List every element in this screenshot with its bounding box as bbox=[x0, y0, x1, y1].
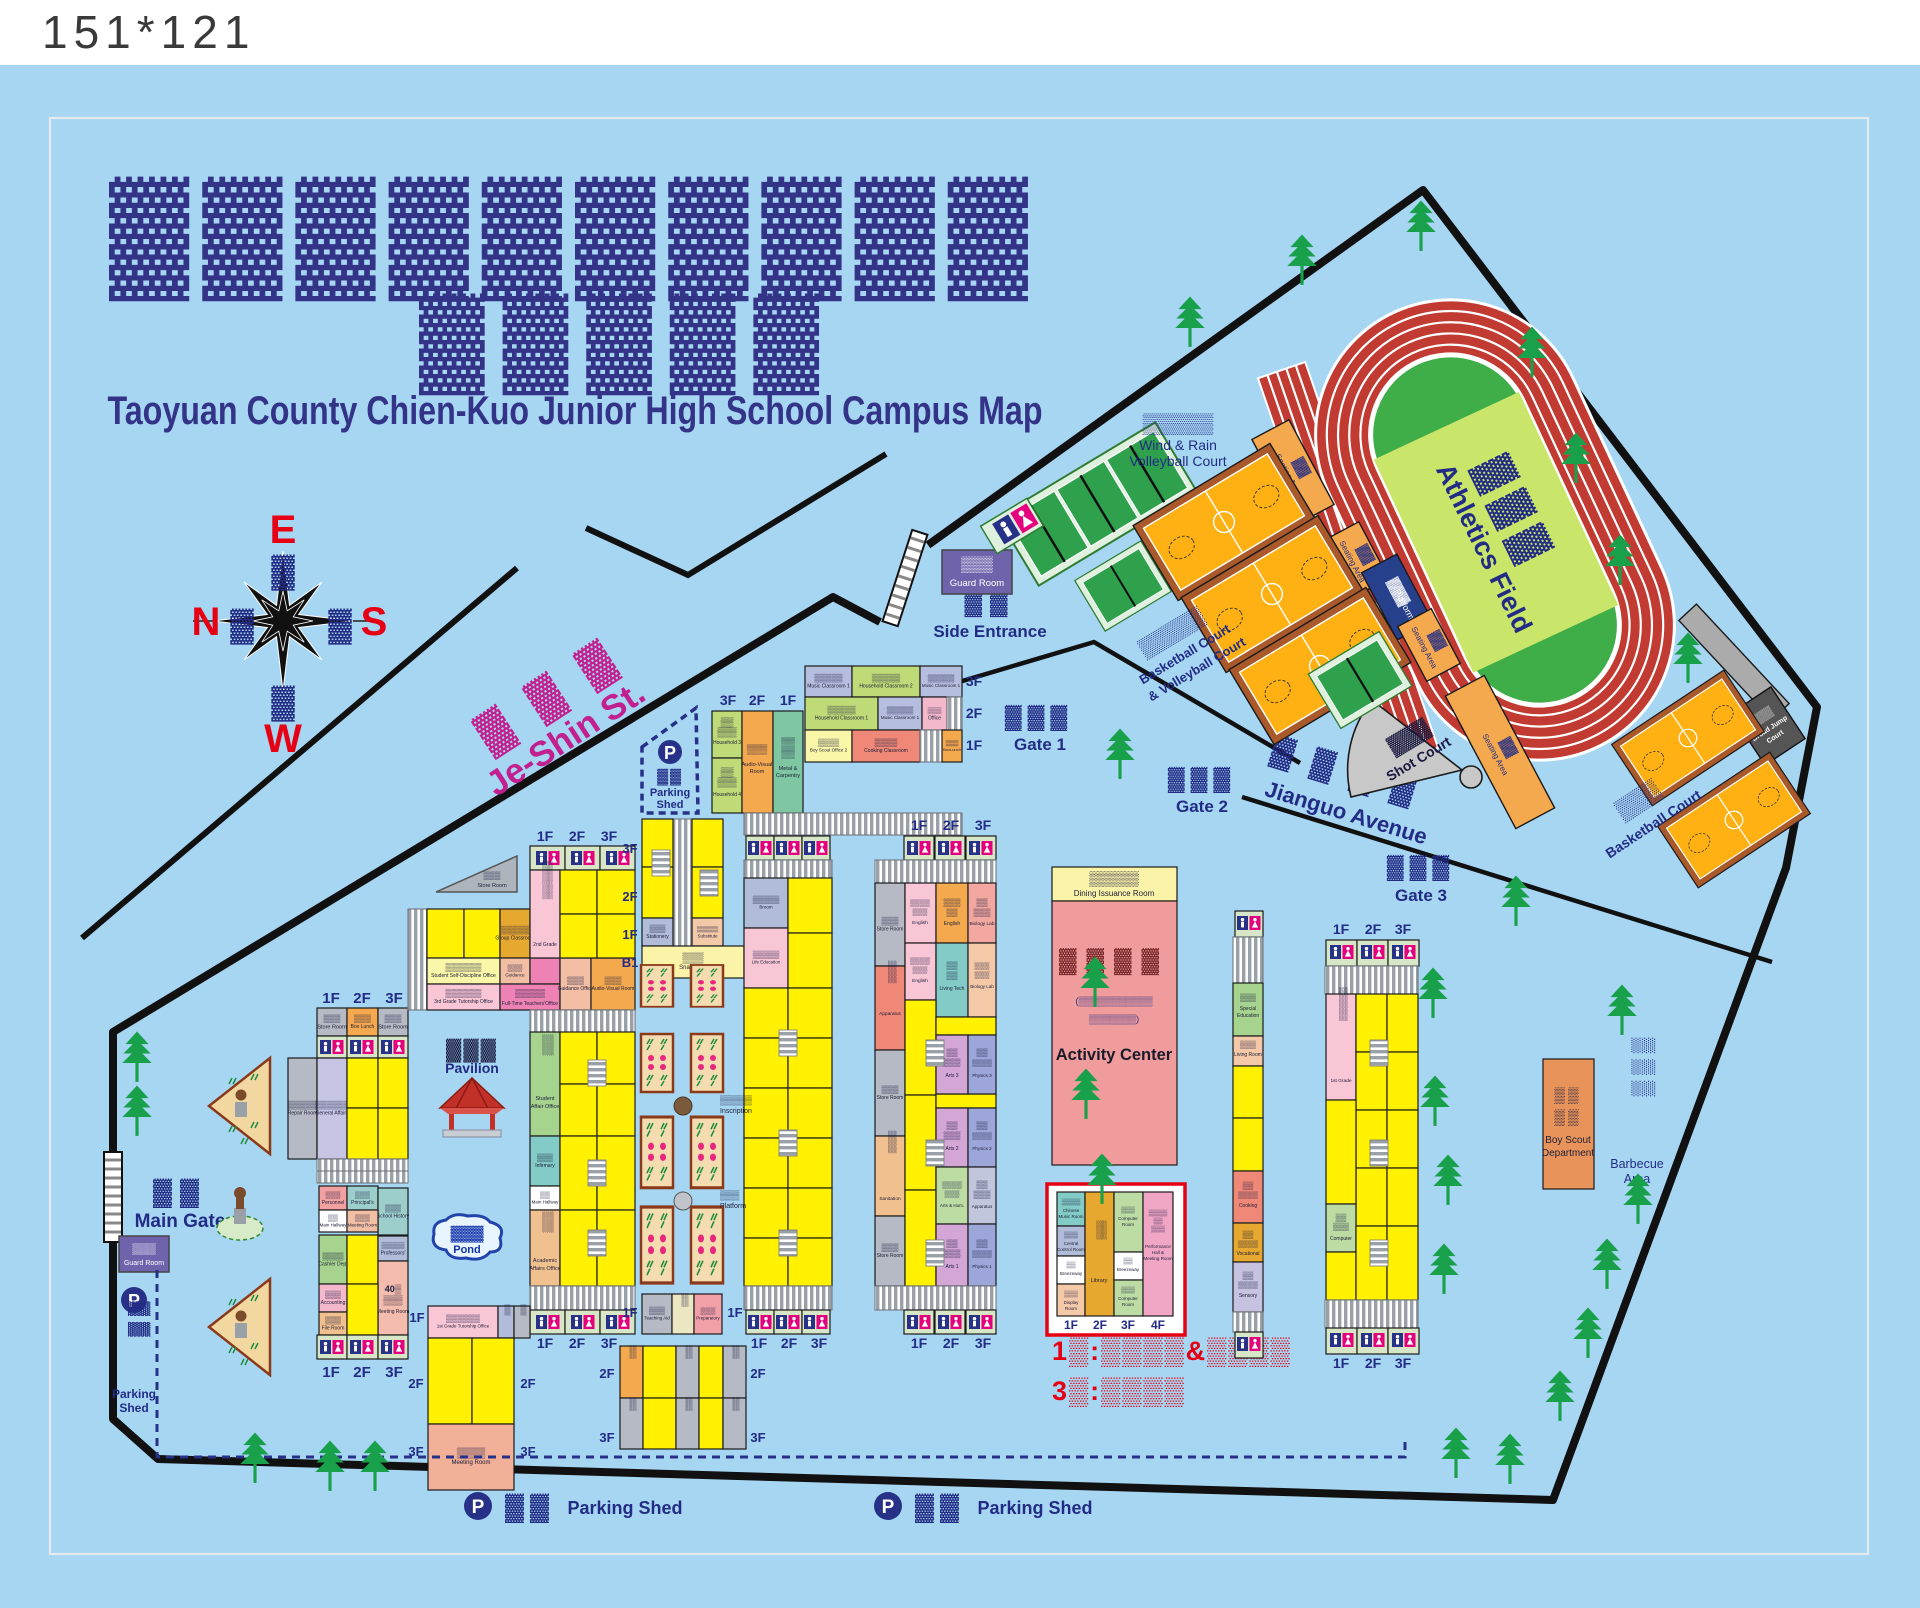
svg-text:▒▒: ▒▒ bbox=[946, 1121, 958, 1130]
svg-text:▒▒▒▒▒: ▒▒▒▒▒ bbox=[928, 674, 955, 683]
svg-text:Pavilion: Pavilion bbox=[445, 1060, 499, 1076]
svg-text:3F: 3F bbox=[1395, 921, 1412, 937]
svg-text:▒▒▒: ▒▒▒ bbox=[881, 1243, 898, 1252]
svg-text:▒▒▒▒▒: ▒▒▒▒▒ bbox=[515, 988, 545, 998]
svg-text:Special: Special bbox=[1240, 1006, 1256, 1012]
svg-text:4F: 4F bbox=[1151, 1318, 1165, 1332]
svg-text:▒▒▒▒▒: ▒▒▒▒▒ bbox=[720, 1095, 753, 1106]
svg-text:Living Tech: Living Tech bbox=[940, 986, 965, 992]
svg-text:▒▒▒: ▒▒▒ bbox=[520, 1304, 527, 1316]
svg-text:3F: 3F bbox=[750, 1430, 765, 1445]
svg-text:▒▒▒▒: ▒▒▒▒ bbox=[322, 1252, 344, 1261]
svg-text:Cashier Dept: Cashier Dept bbox=[318, 1262, 348, 1268]
svg-text:2F: 2F bbox=[1093, 1318, 1107, 1332]
svg-text:▓: ▓ bbox=[328, 606, 352, 645]
svg-text:Library: Library bbox=[1091, 1278, 1108, 1284]
svg-text:▒▒: ▒▒ bbox=[1243, 1230, 1254, 1239]
svg-text:▒▒▒: ▒▒▒ bbox=[732, 1397, 740, 1411]
svg-text:Student Self-Discipline Office: Student Self-Discipline Office bbox=[431, 973, 496, 979]
svg-text:▒▒▒: ▒▒▒ bbox=[567, 976, 584, 985]
svg-text:▒▒▒: ▒▒▒ bbox=[1151, 1225, 1165, 1233]
svg-text:Meeting Room: Meeting Room bbox=[348, 1223, 378, 1228]
svg-text:3F: 3F bbox=[975, 817, 992, 833]
svg-text:Computer: Computer bbox=[1118, 1216, 1138, 1221]
svg-text:Room: Room bbox=[1065, 1306, 1077, 1311]
svg-text:Metal &: Metal & bbox=[779, 766, 798, 772]
svg-text:▒▒▒: ▒▒▒ bbox=[928, 707, 942, 715]
svg-text:Volleyball Court: Volleyball Court bbox=[1129, 453, 1226, 469]
svg-text:2F: 2F bbox=[622, 889, 637, 904]
svg-text:Cooking: Cooking bbox=[1239, 1203, 1258, 1209]
svg-text:▒▒▒: ▒▒▒ bbox=[943, 1058, 960, 1067]
svg-text:▒▒: ▒▒ bbox=[1243, 1271, 1254, 1280]
svg-text:▒▒: ▒▒ bbox=[946, 1048, 958, 1057]
svg-text:3F: 3F bbox=[966, 673, 983, 689]
svg-text:▒▒▒: ▒▒▒ bbox=[325, 1290, 342, 1299]
svg-text:B1: B1 bbox=[622, 955, 639, 970]
svg-text:Room: Room bbox=[750, 769, 765, 775]
svg-text:2F: 2F bbox=[1365, 921, 1382, 937]
svg-text:▒▒▒: ▒▒▒ bbox=[650, 924, 667, 933]
svg-text:▒▒▒: ▒▒▒ bbox=[385, 1204, 402, 1213]
svg-text:▒▒▒▒▒▒: ▒▒▒▒▒▒ bbox=[445, 988, 481, 998]
svg-text:▒▒: ▒▒ bbox=[976, 1239, 988, 1248]
svg-text:▓▓▓▓▓: ▓▓▓▓▓ bbox=[419, 288, 837, 396]
svg-text:Boy Scout: Boy Scout bbox=[1545, 1135, 1591, 1146]
svg-text:Store Room: Store Room bbox=[877, 1095, 904, 1101]
svg-text:Professors': Professors' bbox=[381, 1251, 406, 1257]
svg-text:Arts 1: Arts 1 bbox=[945, 1264, 958, 1270]
svg-text:▒▒▒: ▒▒▒ bbox=[943, 1131, 960, 1140]
svg-text:▓▓: ▓▓ bbox=[505, 1491, 555, 1523]
svg-text:P: P bbox=[472, 1497, 485, 1518]
svg-text:▒▒▒: ▒▒▒ bbox=[717, 777, 737, 788]
svg-text:Group Classroom: Group Classroom bbox=[495, 936, 534, 942]
svg-text:▒▒▒▒▒: ▒▒▒▒▒ bbox=[1089, 870, 1139, 887]
svg-text:2F: 2F bbox=[781, 1335, 798, 1351]
svg-text:2F: 2F bbox=[943, 817, 960, 833]
svg-text:▓▓: ▓▓ bbox=[128, 1301, 151, 1342]
svg-text:Sanitation: Sanitation bbox=[879, 1196, 901, 1202]
svg-text:▒▒: ▒▒ bbox=[1066, 1261, 1076, 1269]
svg-text:Principal's: Principal's bbox=[351, 1200, 374, 1206]
svg-text:Parking Shed: Parking Shed bbox=[567, 1498, 682, 1518]
svg-text:General Affairs: General Affairs bbox=[316, 1111, 349, 1117]
svg-text:Arts 3: Arts 3 bbox=[945, 1073, 958, 1079]
svg-text:Physics 1: Physics 1 bbox=[972, 1264, 992, 1269]
svg-text:▒▒▒▒▒: ▒▒▒▒▒ bbox=[381, 1242, 404, 1250]
svg-text:E: E bbox=[270, 508, 297, 552]
svg-text:1F: 1F bbox=[780, 692, 797, 708]
svg-text:▒▒▒: ▒▒▒ bbox=[1333, 1222, 1350, 1231]
svg-text:▒▒: ▒▒ bbox=[946, 971, 958, 980]
svg-text:Household Classroom 1: Household Classroom 1 bbox=[815, 716, 869, 722]
svg-text:▒▒▒▒: ▒▒▒▒ bbox=[1062, 1198, 1081, 1206]
svg-text:2F: 2F bbox=[599, 1366, 614, 1381]
svg-text:▒▒▒: ▒▒▒ bbox=[975, 971, 990, 979]
svg-text:▒▒▒: ▒▒▒ bbox=[973, 1190, 990, 1199]
svg-text:Preparatory: Preparatory bbox=[696, 1316, 720, 1321]
svg-text:English: English bbox=[912, 920, 928, 926]
svg-text:▓: ▓ bbox=[230, 606, 254, 645]
svg-text:▒▒▒▒: ▒▒▒▒ bbox=[972, 1059, 992, 1067]
svg-text:▓▓▓▓: ▓▓▓▓ bbox=[1059, 947, 1169, 976]
svg-text:Infirmary: Infirmary bbox=[535, 1163, 555, 1169]
svg-text:School History: School History bbox=[377, 1214, 410, 1220]
svg-text:Department: Department bbox=[1542, 1148, 1594, 1159]
svg-text:P: P bbox=[664, 743, 676, 763]
svg-text:▒▒▒: ▒▒▒ bbox=[629, 1345, 637, 1359]
svg-text:2F: 2F bbox=[569, 1335, 586, 1351]
svg-text:▒▒▒: ▒▒▒ bbox=[537, 1153, 554, 1162]
svg-text:1st Grade: 1st Grade bbox=[1330, 1078, 1351, 1084]
svg-text:▒▒▒: ▒▒▒ bbox=[1631, 1038, 1657, 1103]
svg-text:▒▒▒▒▒: ▒▒▒▒▒ bbox=[814, 674, 843, 683]
svg-text:1F: 1F bbox=[911, 1335, 928, 1351]
svg-text:Meeting Room: Meeting Room bbox=[1143, 1256, 1173, 1261]
svg-text:Biology Lab: Biology Lab bbox=[970, 984, 994, 989]
svg-text:3F: 3F bbox=[601, 1335, 618, 1351]
svg-text:▓▓▓: ▓▓▓ bbox=[1005, 703, 1073, 731]
svg-text:▒▒▒: ▒▒▒ bbox=[701, 1307, 716, 1315]
svg-text:▒▒▒: ▒▒▒ bbox=[943, 898, 960, 907]
svg-text:▒▒▒: ▒▒▒ bbox=[604, 976, 621, 985]
svg-text:▒▒▒▒▒▒: ▒▒▒▒▒▒ bbox=[445, 962, 481, 972]
svg-text:▒▒: ▒▒ bbox=[540, 1191, 550, 1199]
svg-text:Guard Room: Guard Room bbox=[124, 1260, 164, 1267]
svg-text:Affairs Office: Affairs Office bbox=[529, 1266, 560, 1272]
svg-text:Dining Issuance Room: Dining Issuance Room bbox=[1074, 889, 1155, 898]
svg-text:▒▒▒▒▒▒▒): ▒▒▒▒▒▒▒) bbox=[1089, 1014, 1139, 1025]
svg-text:Student: Student bbox=[536, 1096, 555, 1102]
svg-text:▓▓: ▓▓ bbox=[657, 768, 683, 786]
svg-text:Platform: Platform bbox=[720, 1203, 746, 1210]
svg-text:▒▒▒▒▒: ▒▒▒▒▒ bbox=[1143, 413, 1215, 435]
svg-text:▒▒▒▒: ▒▒▒▒ bbox=[942, 1181, 962, 1189]
svg-text:▒▒▒: ▒▒▒ bbox=[542, 1034, 554, 1056]
svg-text:Full-Time Teachers'Office: Full-Time Teachers'Office bbox=[502, 1001, 558, 1007]
svg-text:▒▒▒▒: ▒▒▒▒ bbox=[888, 961, 897, 984]
svg-text:Shed: Shed bbox=[657, 799, 684, 811]
svg-text:Control Room: Control Room bbox=[1057, 1247, 1085, 1252]
svg-text:Parking: Parking bbox=[112, 1387, 156, 1401]
svg-text:▒▒▒: ▒▒▒ bbox=[881, 917, 898, 926]
svg-text:▒▒▒: ▒▒▒ bbox=[961, 556, 993, 573]
svg-text:Guidance Office: Guidance Office bbox=[558, 986, 594, 992]
svg-text:▒▒▒▒: ▒▒▒▒ bbox=[910, 899, 930, 907]
svg-text:Sensory: Sensory bbox=[1239, 1293, 1258, 1299]
svg-text:▒▒▒▒▒: ▒▒▒▒▒ bbox=[288, 1101, 317, 1110]
svg-text:▓▓: ▓▓ bbox=[153, 1176, 207, 1208]
svg-text:▒▒: ▒▒ bbox=[1123, 1257, 1133, 1265]
svg-text:▒▒▒: ▒▒▒ bbox=[1121, 1286, 1135, 1294]
svg-text:Main Hallway: Main Hallway bbox=[320, 1223, 348, 1228]
svg-text:Apparatus: Apparatus bbox=[879, 1011, 901, 1017]
svg-text:▒▒▒: ▒▒▒ bbox=[881, 1085, 898, 1094]
svg-text:Education: Education bbox=[1237, 1013, 1259, 1019]
svg-text:▒▒▒: ▒▒▒ bbox=[946, 740, 960, 747]
svg-text:▓▓▓▓▓▓▓▓▓▓: ▓▓▓▓▓▓▓▓▓▓ bbox=[109, 169, 1041, 302]
svg-text:▒▒: ▒▒ bbox=[946, 961, 958, 970]
svg-text:▒▒▒: ▒▒▒ bbox=[355, 1214, 370, 1222]
svg-text:1F: 1F bbox=[322, 990, 340, 1007]
svg-text:▒▒▒▒: ▒▒▒▒ bbox=[1238, 1281, 1258, 1289]
svg-text:Activity Center: Activity Center bbox=[1056, 1046, 1173, 1064]
svg-text:▒▒▒: ▒▒▒ bbox=[732, 1345, 740, 1359]
svg-text:▒▒▒: ▒▒▒ bbox=[747, 744, 767, 755]
svg-text:1F: 1F bbox=[537, 828, 554, 844]
svg-text:2F: 2F bbox=[569, 828, 586, 844]
svg-text:▒▒▒▒: ▒▒▒▒ bbox=[1238, 1240, 1258, 1248]
svg-text:▒▒▒: ▒▒▒ bbox=[483, 871, 500, 880]
svg-text:Main Gate: Main Gate bbox=[135, 1211, 226, 1232]
svg-text:▒▒: ▒▒ bbox=[946, 908, 958, 917]
svg-text:Meeting Room: Meeting Room bbox=[377, 1309, 410, 1315]
svg-text:Physics 2: Physics 2 bbox=[972, 1146, 992, 1151]
svg-text:Vocational: Vocational bbox=[1236, 1251, 1259, 1257]
svg-text:Household 3: Household 3 bbox=[713, 740, 741, 746]
svg-text:Music Room: Music Room bbox=[1058, 1214, 1083, 1219]
svg-text:2F: 2F bbox=[750, 1366, 765, 1381]
svg-text:Arts & Hum.: Arts & Hum. bbox=[940, 1203, 964, 1208]
svg-text:▒▒▒: ▒▒▒ bbox=[913, 966, 928, 974]
svg-text:▒▒: ▒▒ bbox=[1554, 1087, 1581, 1104]
svg-text:Side Entrance: Side Entrance bbox=[933, 622, 1046, 641]
svg-text:▒▒▒: ▒▒▒ bbox=[354, 1014, 371, 1023]
svg-text:1F: 1F bbox=[1064, 1318, 1078, 1332]
svg-text:1st Grade Tutorship Office: 1st Grade Tutorship Office bbox=[437, 1324, 490, 1329]
svg-text:Store Room: Store Room bbox=[877, 927, 904, 933]
svg-text:▒▒▒: ▒▒▒ bbox=[913, 908, 928, 916]
svg-text:▒▒▒: ▒▒▒ bbox=[685, 1397, 693, 1411]
svg-text:Household 4: Household 4 bbox=[713, 792, 741, 798]
svg-text:Parking Shed: Parking Shed bbox=[977, 1498, 1092, 1518]
svg-text:Substitute: Substitute bbox=[697, 934, 718, 939]
svg-text:▓▓▓: ▓▓▓ bbox=[1168, 765, 1236, 793]
svg-text:▒▒▒: ▒▒▒ bbox=[681, 1293, 689, 1307]
svg-text:Academic: Academic bbox=[533, 1258, 557, 1264]
svg-text:Physics 3: Physics 3 bbox=[972, 1073, 992, 1078]
svg-text:Apparatus: Apparatus bbox=[972, 1204, 993, 1209]
svg-text:▒▒▒▒: ▒▒▒▒ bbox=[888, 1131, 897, 1154]
svg-text:P: P bbox=[882, 1497, 895, 1518]
svg-text:Hall &: Hall & bbox=[1152, 1250, 1164, 1255]
svg-text:Audio-Visual Room: Audio-Visual Room bbox=[592, 986, 635, 992]
svg-text:Computer: Computer bbox=[1330, 1236, 1352, 1242]
svg-text:Meeting Room: Meeting Room bbox=[451, 1460, 490, 1466]
svg-text:Living Room: Living Room bbox=[1234, 1052, 1262, 1058]
svg-text:▒▒: ▒▒ bbox=[1336, 1213, 1347, 1222]
svg-text:1F: 1F bbox=[409, 1310, 424, 1325]
svg-text:▒▒▒: ▒▒▒ bbox=[326, 1191, 341, 1199]
svg-text:▓▓: ▓▓ bbox=[915, 1491, 965, 1523]
svg-text:▒▒▒: ▒▒▒ bbox=[649, 1306, 666, 1315]
svg-text:1F: 1F bbox=[751, 1335, 768, 1351]
svg-text:Room: Room bbox=[1122, 1222, 1134, 1227]
svg-text:▒▒▒▒: ▒▒▒▒ bbox=[818, 738, 840, 747]
svg-text:▒▒▒: ▒▒▒ bbox=[325, 1316, 342, 1325]
svg-text:2F: 2F bbox=[749, 692, 766, 708]
svg-text:▒▒▒: ▒▒▒ bbox=[685, 1345, 693, 1359]
svg-text:Affair Office: Affair Office bbox=[531, 1104, 560, 1110]
svg-text:2F: 2F bbox=[408, 1376, 423, 1391]
svg-text:N: N bbox=[192, 600, 221, 644]
svg-text:Store Room: Store Room bbox=[317, 1025, 347, 1031]
svg-text:Teaching Aid: Teaching Aid bbox=[644, 1316, 670, 1321]
svg-text:151*121: 151*121 bbox=[42, 6, 255, 58]
svg-text:▒▒: ▒▒ bbox=[328, 1214, 338, 1222]
svg-text:Repair Room: Repair Room bbox=[288, 1111, 317, 1117]
svg-text:▒▒▒▒: ▒▒▒▒ bbox=[875, 738, 898, 747]
svg-text:▒▒: ▒▒ bbox=[976, 898, 988, 907]
svg-text:3rd Grade Tutorship Office: 3rd Grade Tutorship Office bbox=[434, 999, 493, 1005]
svg-text:S: S bbox=[361, 600, 388, 644]
svg-text:2F: 2F bbox=[520, 1376, 535, 1391]
svg-text:Office: Office bbox=[928, 716, 941, 722]
svg-text:1F: 1F bbox=[966, 737, 983, 753]
svg-text:▒▒▒▒: ▒▒▒▒ bbox=[1238, 1191, 1258, 1199]
svg-text:File Room: File Room bbox=[322, 1326, 345, 1332]
svg-text:3F: 3F bbox=[811, 1335, 828, 1351]
svg-text:▓▓▓: ▓▓▓ bbox=[1387, 853, 1455, 881]
svg-text:▒▒: ▒▒ bbox=[976, 1180, 988, 1189]
svg-text:▒▒▒: ▒▒▒ bbox=[720, 1190, 740, 1201]
svg-text:Central: Central bbox=[1064, 1241, 1079, 1246]
svg-text:2F: 2F bbox=[1365, 1355, 1382, 1371]
svg-text:Computer: Computer bbox=[1118, 1296, 1138, 1301]
svg-text:3F: 3F bbox=[975, 1335, 992, 1351]
svg-text:▒▒: ▒▒ bbox=[946, 1239, 958, 1248]
svg-text:▒▒▒: ▒▒▒ bbox=[355, 1191, 370, 1199]
svg-text:Parking: Parking bbox=[650, 787, 690, 799]
svg-text:▒▒▒: ▒▒▒ bbox=[383, 1295, 403, 1306]
svg-text:▒▒▒: ▒▒▒ bbox=[682, 952, 704, 964]
svg-text:▒▒▒: ▒▒▒ bbox=[973, 908, 990, 917]
svg-text:Taoyuan County Chien-Kuo Junio: Taoyuan County Chien-Kuo Junior High Sch… bbox=[108, 389, 1043, 433]
svg-text:1F: 1F bbox=[322, 1364, 340, 1381]
svg-text:▒▒▒: ▒▒▒ bbox=[1240, 1040, 1257, 1049]
svg-text:2F: 2F bbox=[966, 705, 983, 721]
svg-text:▒▒▒▒: ▒▒▒▒ bbox=[972, 1250, 992, 1258]
svg-text:Music Classroom 1: Music Classroom 1 bbox=[881, 715, 920, 720]
svg-text:3F: 3F bbox=[720, 692, 737, 708]
svg-text:40▒: 40▒ bbox=[385, 1284, 402, 1295]
svg-text:Chinese: Chinese bbox=[1063, 1208, 1080, 1213]
svg-text:▒▒▒▒: ▒▒▒▒ bbox=[1149, 1209, 1168, 1217]
svg-text:▒▒▒: ▒▒▒ bbox=[1064, 1290, 1078, 1298]
svg-text:▒▒▒: ▒▒▒ bbox=[717, 727, 737, 738]
svg-text:1F: 1F bbox=[622, 927, 637, 942]
svg-text:Broom: Broom bbox=[759, 905, 773, 910]
svg-text:3F: 3F bbox=[622, 841, 637, 856]
svg-text:Boy Scout Office 2: Boy Scout Office 2 bbox=[810, 748, 848, 753]
svg-text:▒▒▒: ▒▒▒ bbox=[323, 1014, 340, 1023]
svg-text:▒▒▒▒▒▒: ▒▒▒▒▒▒ bbox=[1339, 987, 1348, 1021]
svg-text:▒▒▒: ▒▒▒ bbox=[1096, 1220, 1107, 1240]
svg-text:▒▒▒: ▒▒▒ bbox=[629, 1397, 637, 1411]
svg-text:▒▒▒▒▒▒: ▒▒▒▒▒▒ bbox=[542, 861, 553, 900]
svg-text:3F: 3F bbox=[599, 1430, 614, 1445]
svg-text:BoxLunch: BoxLunch bbox=[943, 747, 961, 752]
svg-text:1F: 1F bbox=[911, 817, 928, 833]
svg-text:Gate 2: Gate 2 bbox=[1176, 797, 1228, 816]
svg-text:Accounting: Accounting bbox=[321, 1300, 346, 1306]
svg-text:Breezeway: Breezeway bbox=[1117, 1267, 1140, 1272]
svg-text:Shed: Shed bbox=[119, 1401, 148, 1415]
svg-text:Pond: Pond bbox=[453, 1244, 481, 1256]
svg-text:▒▒▒: ▒▒▒ bbox=[384, 1014, 401, 1023]
svg-text:▒▒▒: ▒▒▒ bbox=[504, 1304, 511, 1316]
svg-text:▒▒▒▒▒: ▒▒▒▒▒ bbox=[697, 926, 719, 933]
svg-text:▒▒: ▒▒ bbox=[976, 1048, 988, 1057]
svg-text:1F: 1F bbox=[537, 1335, 554, 1351]
svg-text:Carpentry: Carpentry bbox=[776, 773, 800, 779]
svg-text:English: English bbox=[944, 921, 961, 927]
svg-text:Life Education: Life Education bbox=[752, 960, 781, 965]
svg-text:Music Classroom 1: Music Classroom 1 bbox=[807, 684, 850, 690]
svg-text:Audio-Visual: Audio-Visual bbox=[742, 762, 773, 768]
svg-text:Store Room: Store Room bbox=[477, 883, 507, 889]
svg-text:Stationery: Stationery bbox=[646, 934, 669, 940]
svg-text:2nd Grade: 2nd Grade bbox=[533, 942, 557, 948]
svg-text:(▒▒▒▒▒▒▒▒▒▒▒: (▒▒▒▒▒▒▒▒▒▒▒ bbox=[1075, 996, 1152, 1007]
svg-text:1F: 1F bbox=[1333, 1355, 1350, 1371]
svg-text:3F: 3F bbox=[1121, 1318, 1135, 1332]
svg-text:Box Lunch: Box Lunch bbox=[351, 1024, 375, 1030]
svg-text:▒▒▒▒▒▒: ▒▒▒▒▒▒ bbox=[446, 1314, 480, 1323]
svg-text:Room: Room bbox=[1122, 1302, 1134, 1307]
svg-text:Main Hallway: Main Hallway bbox=[532, 1200, 560, 1205]
svg-text:▓: ▓ bbox=[271, 552, 295, 591]
svg-text:▒▒▒: ▒▒▒ bbox=[542, 1211, 554, 1233]
svg-text:1F: 1F bbox=[727, 1305, 742, 1320]
svg-text:2F: 2F bbox=[353, 1364, 371, 1381]
svg-text:▒▒▒▒▒: ▒▒▒▒▒ bbox=[887, 706, 914, 715]
svg-text:▒▒▒▒▒: ▒▒▒▒▒ bbox=[501, 926, 530, 935]
svg-text:▒▒: ▒▒ bbox=[781, 748, 795, 759]
svg-text:▒▒▒▒▒: ▒▒▒▒▒ bbox=[753, 950, 780, 959]
svg-text:Barbecue: Barbecue bbox=[1610, 1157, 1664, 1171]
svg-text:▒▒▒: ▒▒▒ bbox=[945, 1190, 960, 1198]
svg-text:▒▒▒: ▒▒▒ bbox=[975, 962, 990, 970]
svg-text:Store Room: Store Room bbox=[378, 1025, 408, 1031]
svg-text:Gate 1: Gate 1 bbox=[1014, 735, 1066, 754]
svg-text:Arts 2: Arts 2 bbox=[945, 1146, 958, 1152]
svg-text:▒▒: ▒▒ bbox=[1243, 1181, 1254, 1190]
svg-text:3▒:▒▒▒▒: 3▒:▒▒▒▒ bbox=[1052, 1376, 1186, 1407]
svg-text:▒▒▒▒▒: ▒▒▒▒▒ bbox=[872, 674, 901, 683]
svg-text:2F: 2F bbox=[353, 990, 371, 1007]
svg-text:Wind & Rain: Wind & Rain bbox=[1139, 437, 1217, 453]
svg-text:▒▒▒: ▒▒▒ bbox=[132, 1242, 156, 1255]
svg-text:3F: 3F bbox=[601, 828, 618, 844]
svg-text:3F: 3F bbox=[385, 1364, 403, 1381]
svg-text:English: English bbox=[912, 978, 928, 984]
svg-text:1F: 1F bbox=[622, 1305, 637, 1320]
svg-text:2F: 2F bbox=[943, 1335, 960, 1351]
svg-text:Cooking Classroom: Cooking Classroom bbox=[864, 748, 908, 754]
svg-text:3F: 3F bbox=[385, 990, 403, 1007]
svg-text:▒▒▒: ▒▒▒ bbox=[943, 1249, 960, 1258]
svg-text:Guidance: Guidance bbox=[505, 973, 525, 978]
svg-text:Inscription: Inscription bbox=[720, 1108, 752, 1115]
svg-text:▒▒▒: ▒▒▒ bbox=[1064, 1231, 1078, 1239]
svg-text:3F: 3F bbox=[1395, 1355, 1412, 1371]
svg-text:▒▒▒: ▒▒▒ bbox=[1121, 1206, 1135, 1214]
svg-text:Store Room: Store Room bbox=[877, 1253, 904, 1259]
svg-text:Display: Display bbox=[1064, 1300, 1080, 1305]
svg-text:Biology Lab: Biology Lab bbox=[969, 921, 994, 927]
